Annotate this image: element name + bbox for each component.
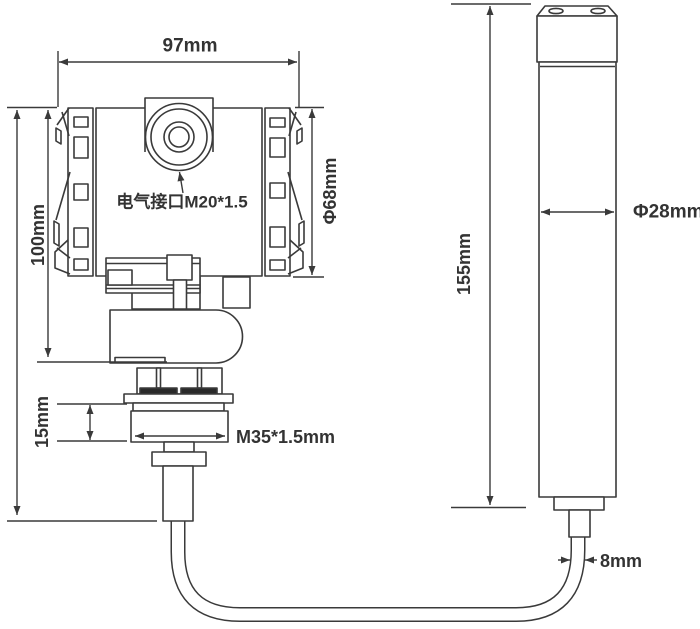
process-connection xyxy=(110,310,243,521)
dimension-drawing: 97mm 100mm 15mm Φ68mm 电气接口M20*1.5 M35*1.… xyxy=(0,0,700,629)
probe-cap xyxy=(537,16,617,62)
drawing-canvas xyxy=(0,0,700,629)
housing-right-fins xyxy=(265,108,304,276)
probe-tube xyxy=(539,62,616,497)
elbow-fitting xyxy=(110,310,243,363)
dim-width-label: 97mm xyxy=(163,37,218,56)
cable-gland-tube xyxy=(163,466,193,521)
probe-cap-hole xyxy=(549,8,563,13)
connection-cable xyxy=(178,516,578,615)
dim-height-label: 100mm xyxy=(29,204,47,266)
dim-cable-diameter-label: 8mm xyxy=(600,552,642,570)
probe-step xyxy=(554,497,604,510)
threaded-section xyxy=(131,411,228,442)
electrical-port-label: 电气接口M20*1.5 xyxy=(116,194,247,211)
lower-flange xyxy=(152,452,206,466)
dim-body-diameter-label: Φ68mm xyxy=(321,158,339,225)
housing-left-fins xyxy=(54,108,93,276)
probe-cable-connector xyxy=(569,510,590,537)
probe-body xyxy=(537,6,617,537)
dim-probe-length-label: 155mm xyxy=(455,233,473,295)
process-thread-label: M35*1.5mm xyxy=(236,428,335,446)
probe-cap-hole xyxy=(591,8,605,13)
dim-thread-height-label: 15mm xyxy=(33,396,51,448)
terminal-boss xyxy=(167,255,192,280)
side-step xyxy=(223,277,250,308)
dimension-lines xyxy=(7,4,614,560)
flange-plate xyxy=(124,394,233,403)
electrical-port xyxy=(145,98,213,171)
dim-probe-diameter-label: Φ28mm xyxy=(633,203,700,222)
terminal-stem xyxy=(174,280,187,309)
